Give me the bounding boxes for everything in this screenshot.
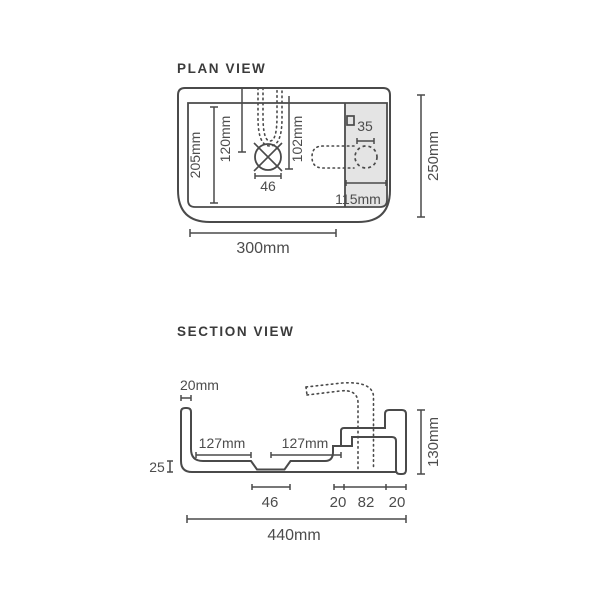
section-faucet-outline: [306, 383, 374, 470]
dim-plan-overall-depth: 250mm: [417, 95, 442, 217]
dim-plan-tap-hole-label: 35: [357, 118, 373, 134]
plan-view: PLAN VIEW 205mm 120mm: [177, 61, 442, 257]
dim-section-base-thickness: 25: [149, 459, 173, 475]
dim-section-base-thickness-label: 25: [149, 459, 165, 475]
technical-drawing-page: PLAN VIEW 205mm 120mm: [0, 0, 600, 600]
dim-plan-drain-offset-label: 102mm: [289, 116, 305, 163]
dim-section-deck-width-label: 82: [358, 494, 375, 511]
dim-plan-overall-width: 300mm: [190, 229, 336, 257]
section-view-title: SECTION VIEW: [177, 324, 294, 339]
dim-section-drain-width: 46: [252, 484, 290, 511]
dim-plan-spout-reach: 120mm: [217, 88, 246, 162]
dim-plan-drain-offset: 102mm: [285, 96, 305, 169]
drawing-canvas: PLAN VIEW 205mm 120mm: [0, 0, 600, 600]
dim-section-overall-height: 130mm: [417, 410, 442, 474]
dim-section-bowl-left: 127mm: [196, 435, 251, 458]
dim-plan-overall-depth-label: 250mm: [425, 131, 442, 181]
drain-symbol-icon: [254, 143, 282, 171]
dim-section-right-wall-label: 20: [389, 494, 406, 511]
dim-section-overall-width-label: 440mm: [267, 527, 320, 544]
dim-section-overall-width: 440mm: [187, 515, 406, 544]
dim-plan-drain-size-label: 46: [260, 178, 276, 194]
dim-section-bowl-right: 127mm: [271, 435, 341, 458]
dim-plan-bowl-depth: 205mm: [187, 107, 218, 203]
dim-plan-bowl-depth-label: 205mm: [187, 132, 203, 179]
dim-section-deck-segments: 20 82 20: [330, 484, 406, 511]
dim-section-step-width-label: 20: [330, 494, 347, 511]
dim-section-drain-width-label: 46: [262, 494, 279, 511]
dim-plan-spout-reach-label: 120mm: [217, 116, 233, 163]
dim-section-wall-thickness-label: 20mm: [180, 377, 219, 393]
dim-section-overall-height-label: 130mm: [425, 417, 442, 467]
dim-section-bowl-left-label: 127mm: [199, 435, 246, 451]
plan-view-title: PLAN VIEW: [177, 61, 266, 76]
section-view: SECTION VIEW 20mm 127mm 127mm 25: [149, 324, 442, 544]
dim-plan-drain-size: 46: [255, 173, 281, 194]
dim-plan-deck-width-label: 115mm: [335, 191, 381, 207]
plan-faucet-spout-outline: [258, 88, 282, 146]
plan-faucet-spout-inner-outline: [263, 88, 277, 141]
dim-section-wall-thickness: 20mm: [180, 377, 219, 401]
dim-plan-overall-width-label: 300mm: [236, 240, 289, 257]
dim-section-bowl-right-label: 127mm: [282, 435, 329, 451]
